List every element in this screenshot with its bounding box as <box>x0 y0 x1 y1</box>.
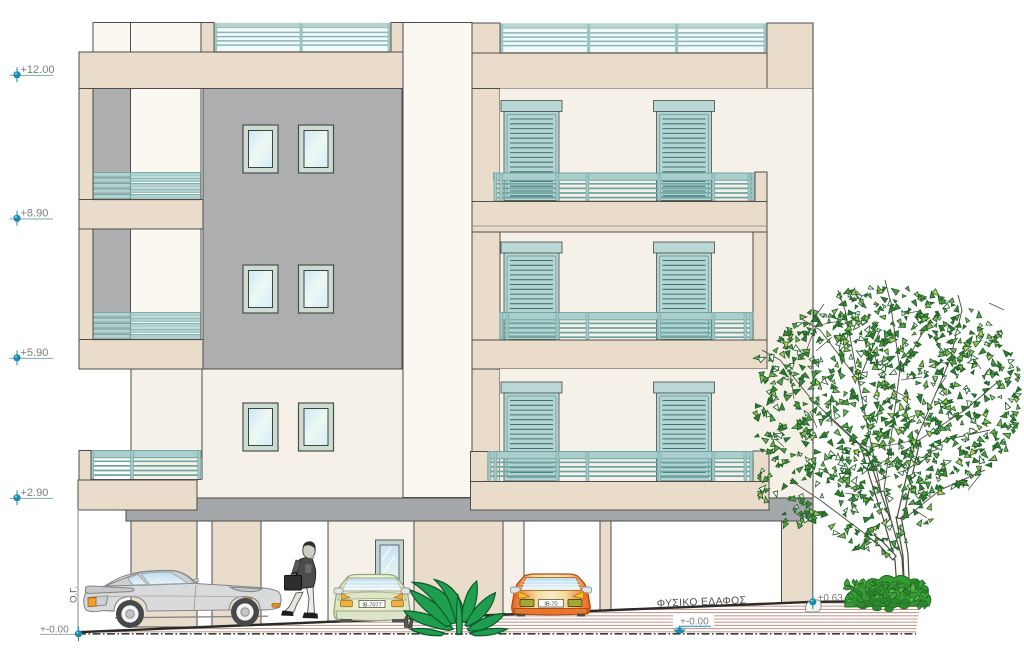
svg-text:+2.90: +2.90 <box>21 487 49 499</box>
svg-text:+5.90: +5.90 <box>21 347 49 359</box>
svg-text:+8.90: +8.90 <box>21 208 49 220</box>
svg-text:IB-70: IB-70 <box>544 602 557 608</box>
svg-text:+-0.00: +-0.00 <box>40 624 69 635</box>
svg-text:IB-7077: IB-7077 <box>362 602 381 608</box>
svg-text:+0.63: +0.63 <box>818 593 844 604</box>
svg-text:Ο.Γ.: Ο.Γ. <box>69 586 80 603</box>
svg-text:+12.00: +12.00 <box>21 64 55 76</box>
